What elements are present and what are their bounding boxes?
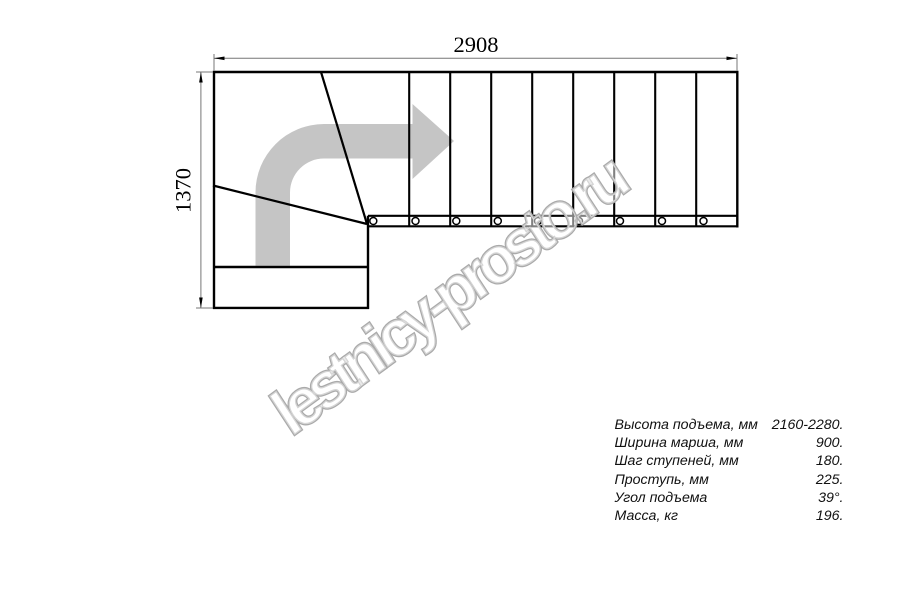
svg-text:2908: 2908 (454, 32, 499, 57)
svg-text:lestnicy-prosto.ru: lestnicy-prosto.ru (259, 140, 638, 449)
svg-text:1370: 1370 (171, 168, 196, 213)
